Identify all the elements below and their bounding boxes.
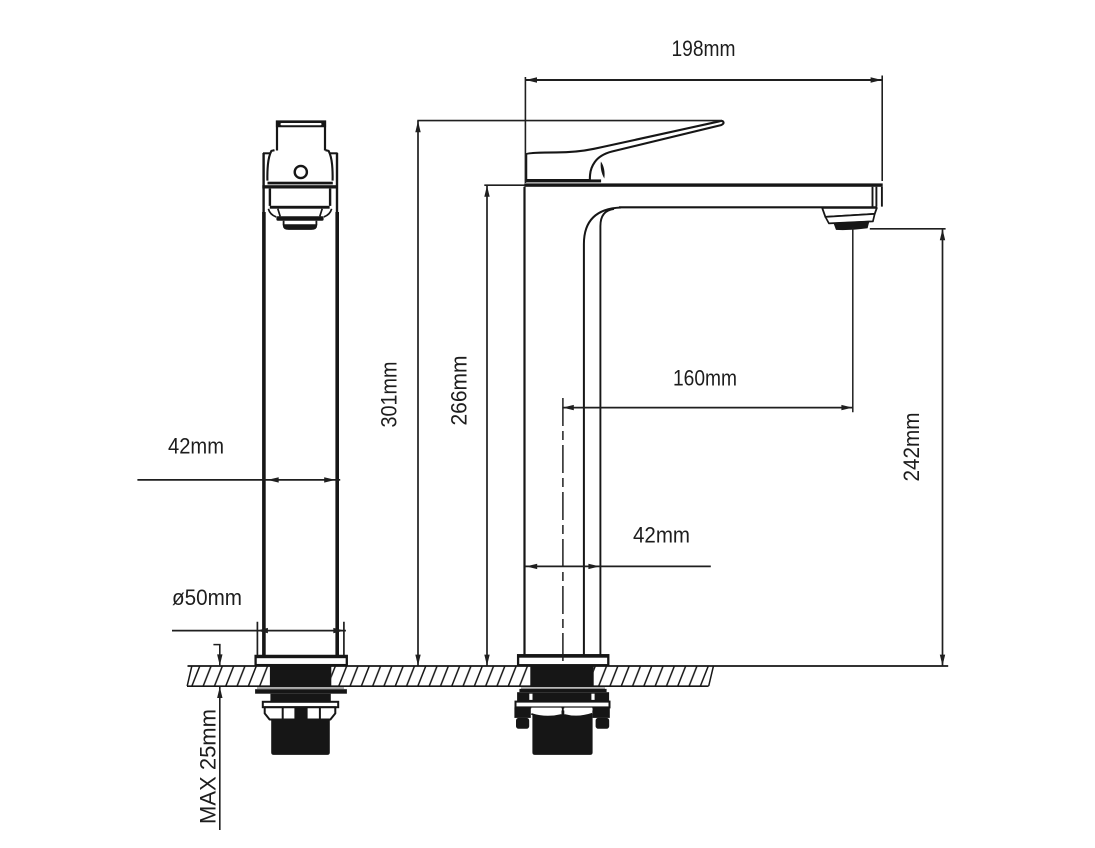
svg-text:266mm: 266mm <box>447 356 472 426</box>
svg-text:ø50mm: ø50mm <box>172 585 242 610</box>
svg-text:42mm: 42mm <box>633 523 690 548</box>
svg-text:301mm: 301mm <box>377 362 402 428</box>
svg-text:160mm: 160mm <box>673 366 737 391</box>
svg-text:42mm: 42mm <box>168 434 224 459</box>
svg-text:198mm: 198mm <box>672 36 736 61</box>
svg-text:242mm: 242mm <box>899 413 924 482</box>
svg-text:MAX 25mm: MAX 25mm <box>196 709 221 824</box>
